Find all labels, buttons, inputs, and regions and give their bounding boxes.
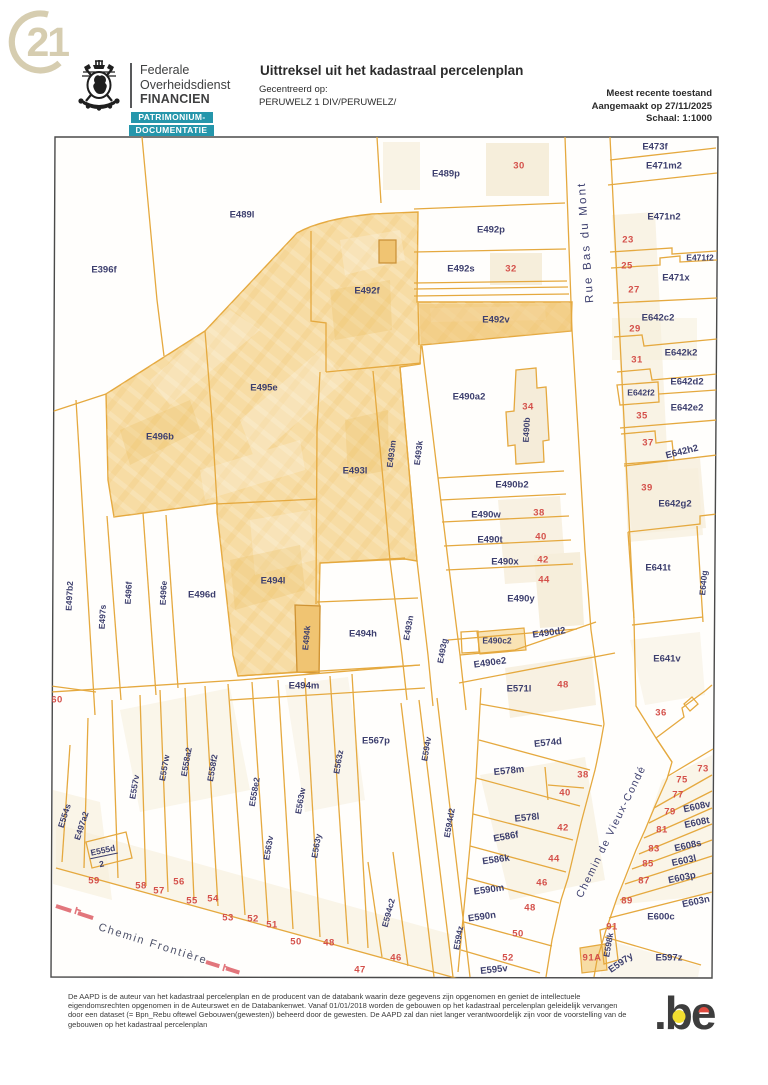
svg-text:E494h: E494h <box>349 629 377 640</box>
svg-text:E597z: E597z <box>656 953 683 964</box>
svg-text:59: 59 <box>88 876 100 887</box>
svg-text:E490t: E490t <box>477 535 503 546</box>
svg-text:40: 40 <box>559 788 571 799</box>
svg-text:46: 46 <box>390 953 402 964</box>
svg-text:E571l: E571l <box>507 684 532 695</box>
svg-text:42: 42 <box>537 555 549 566</box>
svg-text:48: 48 <box>557 680 569 691</box>
svg-text:85: 85 <box>642 859 654 870</box>
svg-text:58: 58 <box>135 881 147 892</box>
svg-text:E490x: E490x <box>491 557 519 568</box>
svg-text:E473f: E473f <box>642 142 668 153</box>
svg-text:E489p: E489p <box>432 169 460 180</box>
svg-text:E495e: E495e <box>250 383 277 394</box>
svg-text:54: 54 <box>207 894 219 905</box>
svg-text:77: 77 <box>672 790 684 801</box>
svg-text:E642g2: E642g2 <box>658 499 691 510</box>
svg-text:91: 91 <box>606 922 618 933</box>
svg-text:E492p: E492p <box>477 225 505 236</box>
svg-text:E567p: E567p <box>362 736 390 747</box>
svg-text:E490c2: E490c2 <box>482 635 512 645</box>
svg-text:E396f: E396f <box>91 265 117 276</box>
svg-text:48: 48 <box>524 903 536 914</box>
svg-text:30: 30 <box>513 161 525 172</box>
svg-text:44: 44 <box>548 854 560 865</box>
svg-text:42: 42 <box>557 823 569 834</box>
svg-text:46: 46 <box>536 878 548 889</box>
svg-text:32: 32 <box>505 264 517 275</box>
svg-text:E497s: E497s <box>97 604 108 629</box>
svg-text:47: 47 <box>354 965 366 976</box>
svg-text:39: 39 <box>641 483 653 494</box>
svg-text:E471x: E471x <box>662 273 690 284</box>
svg-text:E642k2: E642k2 <box>665 348 698 359</box>
svg-text:E471f2: E471f2 <box>686 252 714 262</box>
svg-text:E492f: E492f <box>354 286 380 297</box>
svg-text:89: 89 <box>621 896 633 907</box>
svg-text:48: 48 <box>323 938 335 949</box>
svg-text:53: 53 <box>222 913 234 924</box>
svg-text:E494l: E494l <box>261 576 286 587</box>
svg-text:87: 87 <box>638 876 650 887</box>
svg-text:E497b2: E497b2 <box>63 581 75 612</box>
svg-text:50: 50 <box>512 929 524 940</box>
svg-text:E600c: E600c <box>647 912 674 923</box>
svg-text:50: 50 <box>290 937 302 948</box>
svg-text:44: 44 <box>538 575 550 586</box>
svg-text:34: 34 <box>522 402 534 413</box>
svg-text:52: 52 <box>247 914 259 925</box>
svg-text:E496b: E496b <box>146 432 174 443</box>
svg-text:36: 36 <box>655 708 667 719</box>
svg-text:83: 83 <box>648 844 660 855</box>
svg-text:E641t: E641t <box>645 563 671 574</box>
svg-text:52: 52 <box>502 953 514 964</box>
svg-text:E490a2: E490a2 <box>453 392 486 403</box>
svg-text:E641v: E641v <box>653 654 681 665</box>
svg-text:57: 57 <box>153 886 165 897</box>
svg-text:23: 23 <box>622 235 634 246</box>
svg-text:35: 35 <box>636 411 648 422</box>
svg-text:31: 31 <box>631 355 643 366</box>
svg-text:E494m: E494m <box>289 681 320 692</box>
svg-text:91A: 91A <box>583 953 602 964</box>
svg-text:E490b: E490b <box>521 417 532 443</box>
svg-text:E496f: E496f <box>123 581 134 604</box>
svg-text:E489l: E489l <box>230 210 255 221</box>
svg-text:38: 38 <box>533 508 545 519</box>
svg-text:73: 73 <box>697 764 709 775</box>
svg-text:E496d: E496d <box>188 590 216 601</box>
svg-text:79: 79 <box>664 807 676 818</box>
svg-text:E490b2: E490b2 <box>495 480 528 491</box>
svg-text:E492v: E492v <box>482 315 510 326</box>
svg-text:E492s: E492s <box>447 264 474 275</box>
svg-text:E642d2: E642d2 <box>670 377 703 388</box>
svg-text:75: 75 <box>676 775 688 786</box>
svg-text:E471m2: E471m2 <box>646 161 682 172</box>
svg-text:E496e: E496e <box>158 580 169 605</box>
svg-text:56: 56 <box>173 877 185 888</box>
svg-text:27: 27 <box>628 285 640 296</box>
svg-text:81: 81 <box>656 825 668 836</box>
svg-text:51: 51 <box>266 920 278 931</box>
svg-text:E490y: E490y <box>507 594 535 605</box>
svg-text:29: 29 <box>629 324 641 335</box>
svg-text:E471n2: E471n2 <box>647 212 680 223</box>
svg-text:40: 40 <box>535 532 547 543</box>
svg-text:60: 60 <box>51 695 63 706</box>
svg-text:E642f2: E642f2 <box>627 387 655 397</box>
svg-text:E493l: E493l <box>343 466 368 477</box>
svg-text:55: 55 <box>186 896 198 907</box>
svg-text:E642c2: E642c2 <box>642 313 675 324</box>
svg-text:E642e2: E642e2 <box>671 403 704 414</box>
svg-text:25: 25 <box>621 261 633 272</box>
svg-text:37: 37 <box>642 438 654 449</box>
svg-text:E490w: E490w <box>471 510 501 521</box>
svg-text:38: 38 <box>577 770 589 781</box>
